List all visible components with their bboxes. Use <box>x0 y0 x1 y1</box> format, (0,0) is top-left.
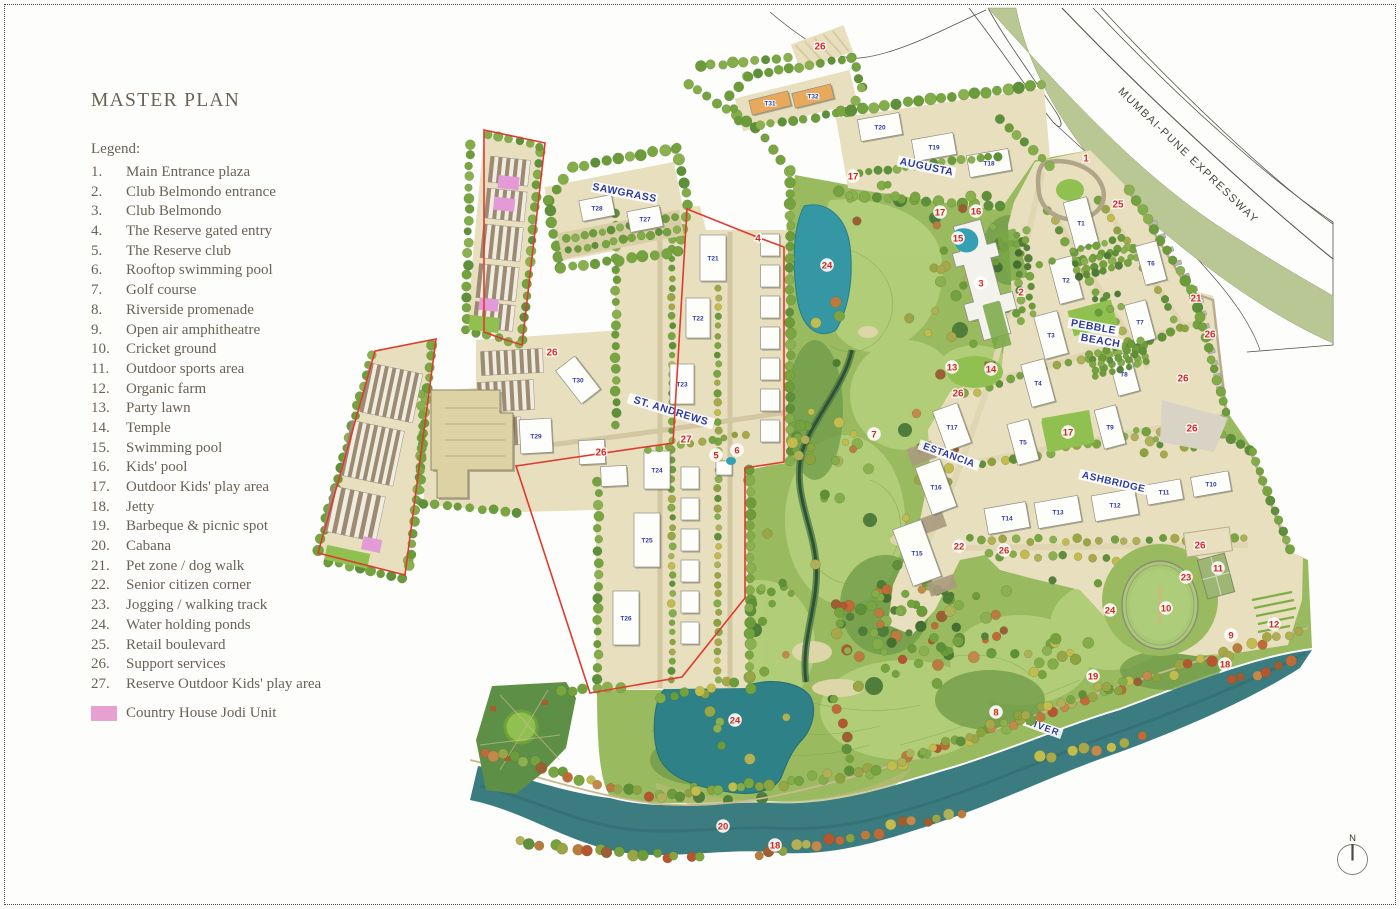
svg-text:26: 26 <box>999 545 1010 556</box>
svg-text:T32: T32 <box>807 93 819 100</box>
svg-text:T18: T18 <box>983 160 995 167</box>
svg-text:T25: T25 <box>641 537 653 544</box>
svg-text:20: 20 <box>718 821 729 832</box>
svg-text:6: 6 <box>734 445 739 456</box>
svg-text:T10: T10 <box>1205 481 1217 488</box>
svg-text:T20: T20 <box>874 124 886 131</box>
svg-text:7: 7 <box>871 429 876 440</box>
svg-text:T12: T12 <box>1109 502 1121 509</box>
svg-text:T4: T4 <box>1034 380 1042 387</box>
svg-text:15: 15 <box>953 233 964 244</box>
svg-text:26: 26 <box>814 41 826 52</box>
svg-text:T11: T11 <box>1159 489 1170 496</box>
svg-text:T28: T28 <box>591 205 603 212</box>
svg-text:T26: T26 <box>620 615 632 622</box>
svg-text:T9: T9 <box>1106 424 1114 431</box>
svg-text:1: 1 <box>1083 153 1089 164</box>
svg-text:N: N <box>1349 833 1356 844</box>
svg-text:26: 26 <box>952 388 964 399</box>
svg-text:T1: T1 <box>1077 220 1085 227</box>
svg-text:12: 12 <box>1269 619 1280 630</box>
svg-text:18: 18 <box>770 840 781 851</box>
svg-text:17: 17 <box>1063 427 1074 438</box>
svg-text:T24: T24 <box>651 467 663 474</box>
svg-text:3: 3 <box>978 278 983 289</box>
svg-text:T5: T5 <box>1019 439 1027 446</box>
svg-text:T13: T13 <box>1052 509 1064 516</box>
svg-text:T29: T29 <box>530 433 542 440</box>
svg-text:8: 8 <box>993 707 998 718</box>
svg-text:14: 14 <box>986 364 997 375</box>
svg-text:26: 26 <box>1177 373 1189 384</box>
svg-text:17: 17 <box>935 207 946 218</box>
svg-text:T14: T14 <box>1001 515 1013 522</box>
svg-text:4: 4 <box>755 233 761 244</box>
svg-text:27: 27 <box>680 434 692 445</box>
svg-text:T22: T22 <box>692 315 704 322</box>
svg-text:26: 26 <box>1204 329 1216 340</box>
svg-text:10: 10 <box>1161 603 1172 614</box>
svg-text:26: 26 <box>1194 540 1206 551</box>
svg-text:21: 21 <box>1190 293 1202 304</box>
svg-text:T21: T21 <box>707 255 719 262</box>
svg-text:T16: T16 <box>930 484 942 491</box>
svg-text:T23: T23 <box>676 381 688 388</box>
svg-text:22: 22 <box>954 541 965 552</box>
svg-text:T3: T3 <box>1047 332 1055 339</box>
svg-text:T27: T27 <box>639 216 651 223</box>
svg-text:T30: T30 <box>572 377 584 384</box>
svg-text:24: 24 <box>730 715 741 726</box>
svg-text:T17: T17 <box>946 424 958 431</box>
svg-text:11: 11 <box>1213 563 1224 574</box>
svg-text:9: 9 <box>1228 630 1233 641</box>
svg-text:T2: T2 <box>1062 277 1070 284</box>
svg-text:T7: T7 <box>1136 319 1144 326</box>
svg-text:T19: T19 <box>928 144 940 151</box>
svg-text:26: 26 <box>546 347 558 358</box>
svg-text:24: 24 <box>1105 605 1116 616</box>
svg-text:17: 17 <box>848 171 859 182</box>
svg-text:2: 2 <box>1018 287 1024 298</box>
svg-text:23: 23 <box>1181 572 1192 583</box>
svg-text:16: 16 <box>971 206 982 217</box>
svg-text:26: 26 <box>595 447 607 458</box>
svg-text:T15: T15 <box>911 550 923 557</box>
svg-text:5: 5 <box>713 450 719 461</box>
svg-text:25: 25 <box>1112 199 1124 210</box>
svg-text:18: 18 <box>1220 659 1231 670</box>
svg-text:13: 13 <box>947 362 958 373</box>
svg-text:T31: T31 <box>764 100 776 107</box>
svg-text:19: 19 <box>1088 671 1099 682</box>
svg-text:T6: T6 <box>1147 260 1155 267</box>
svg-text:24: 24 <box>822 260 833 271</box>
svg-text:26: 26 <box>1186 423 1198 434</box>
